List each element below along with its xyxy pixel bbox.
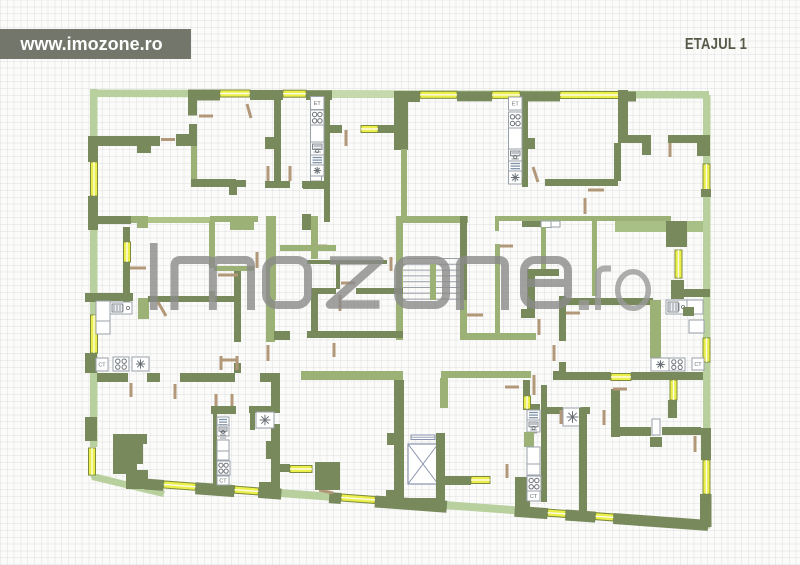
svg-text:CT: CT <box>530 494 538 500</box>
svg-text:CT: CT <box>694 362 702 368</box>
svg-text:ET: ET <box>314 101 322 107</box>
svg-text:CT: CT <box>219 479 227 485</box>
svg-text:ET: ET <box>512 102 520 108</box>
svg-text:CT: CT <box>98 363 106 369</box>
